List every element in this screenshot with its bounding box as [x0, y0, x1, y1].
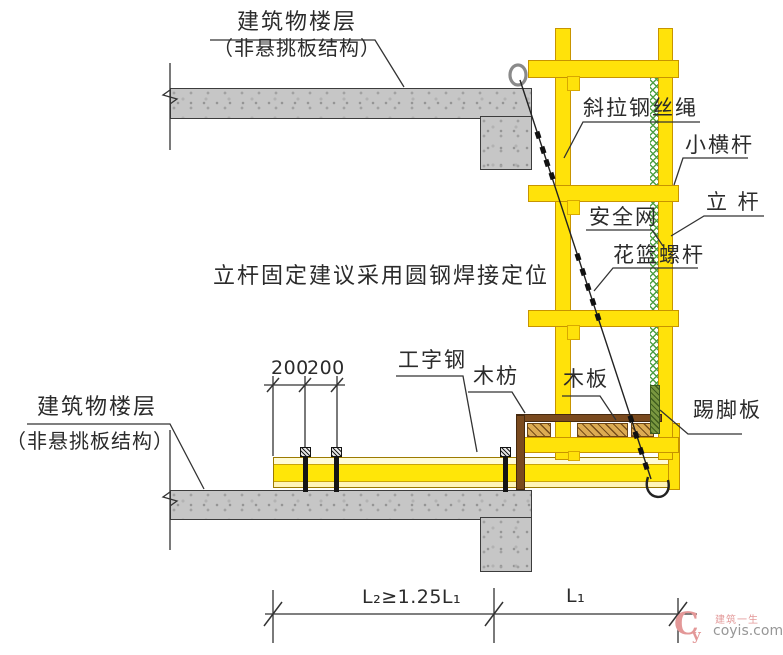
dim-span-tick-2	[485, 602, 503, 626]
dim-anchor-span: L₂≥1.25L₁	[362, 587, 461, 608]
watermark-site: coyis.com	[713, 623, 783, 639]
label-wire-rope: 斜拉钢丝绳	[583, 97, 698, 120]
leader-i-beam	[396, 376, 477, 452]
anchor-ring	[510, 65, 526, 85]
leader-pole	[671, 216, 764, 236]
label-wood-plank: 木板	[563, 368, 609, 391]
label-floor-top-line2: （非悬挑板结构）	[213, 37, 381, 59]
label-floor-bottom-line2: （非悬挑板结构）	[6, 430, 174, 452]
lower-edge-beam	[480, 517, 532, 572]
cross-bar-2	[528, 185, 679, 202]
dim-200-tick-1	[267, 378, 279, 392]
coupler-3	[567, 325, 580, 340]
dim-200-right: 200	[307, 358, 345, 379]
wood-plank-2	[577, 423, 628, 437]
label-wood-batten: 木枋	[473, 365, 519, 388]
dim-200-tick-2	[299, 378, 311, 392]
label-floor-top-line1: 建筑物楼层	[237, 11, 357, 35]
wood-batten-horizontal	[516, 414, 662, 422]
label-toe-board: 踢脚板	[693, 399, 762, 422]
label-floor-bottom-line1: 建筑物楼层	[37, 396, 157, 420]
coupler-2	[567, 200, 580, 215]
watermark-logo-y: y	[692, 626, 701, 644]
label-note: 立杆固定建议采用圆钢焊接定位	[213, 265, 549, 289]
label-small-cross-bar: 小横杆	[685, 134, 754, 157]
leader-turnbuckle	[594, 268, 698, 291]
wood-batten-vertical	[516, 415, 525, 490]
label-turnbuckle: 花篮螺杆	[613, 244, 705, 267]
lower-floor-slab	[170, 490, 532, 520]
dim-200-left: 200	[271, 358, 309, 379]
scaffold-pole-left	[555, 28, 571, 460]
label-i-beam: 工字钢	[398, 349, 467, 372]
upper-edge-beam	[480, 116, 532, 170]
upper-floor-slab	[170, 88, 532, 119]
coupler-1	[567, 76, 580, 91]
coupler-4	[568, 451, 580, 461]
label-pole: 立 杆	[706, 191, 761, 214]
anchor-bolt-2-rod	[334, 456, 339, 492]
cross-bar-1	[528, 60, 679, 78]
leader-wood-batten	[468, 392, 525, 413]
anchor-bolt-3-rod	[503, 456, 508, 492]
leader-small-cross-bar	[674, 158, 748, 185]
dim-span-tick-1	[264, 602, 282, 626]
dim-200-tick-3	[331, 378, 343, 392]
toe-board	[650, 385, 660, 434]
dim-cantilever-span: L₁	[566, 586, 585, 607]
cross-bar-3	[528, 310, 679, 327]
bottom-ledger-tube	[516, 437, 679, 453]
wood-plank-1	[527, 423, 551, 437]
scaffold-detail-diagram: 建筑物楼层 （非悬挑板结构） 建筑物楼层 （非悬挑板结构） 斜拉钢丝绳 小横杆 …	[0, 0, 783, 655]
label-safety-net: 安全网	[589, 206, 658, 229]
anchor-bolt-1-rod	[303, 456, 308, 492]
leader-wire-rope	[564, 122, 700, 158]
